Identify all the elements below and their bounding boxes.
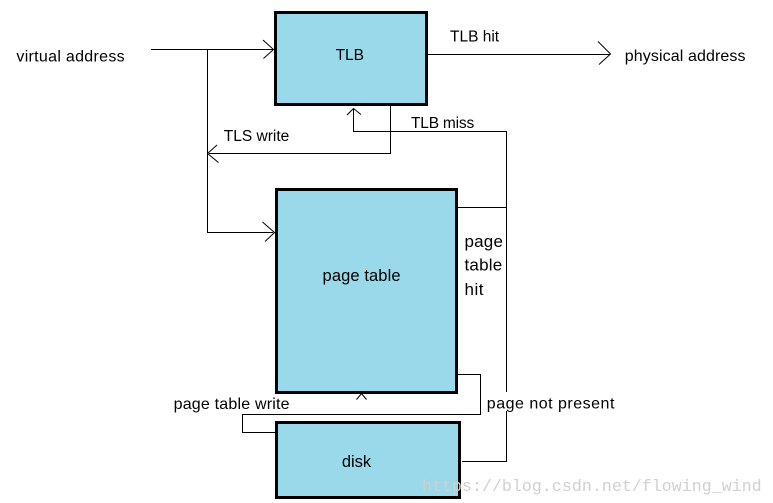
svg-text:hit: hit bbox=[465, 280, 484, 299]
svg-text:TLB miss: TLB miss bbox=[411, 115, 474, 132]
svg-text:disk: disk bbox=[342, 453, 372, 471]
svg-text:page not present: page not present bbox=[487, 395, 615, 412]
svg-text:TLS write: TLS write bbox=[224, 128, 289, 145]
svg-text:page table write: page table write bbox=[174, 396, 290, 413]
svg-text:virtual address: virtual address bbox=[16, 48, 125, 65]
svg-text:https://blog.csdn.net/flowing_: https://blog.csdn.net/flowing_wind bbox=[422, 477, 762, 496]
svg-text:table: table bbox=[465, 256, 503, 275]
svg-text:TLB: TLB bbox=[336, 47, 364, 64]
svg-text:page table: page table bbox=[323, 267, 401, 285]
svg-text:page: page bbox=[465, 232, 504, 251]
svg-text:physical address: physical address bbox=[625, 48, 746, 65]
svg-text:TLB hit: TLB hit bbox=[450, 28, 500, 45]
